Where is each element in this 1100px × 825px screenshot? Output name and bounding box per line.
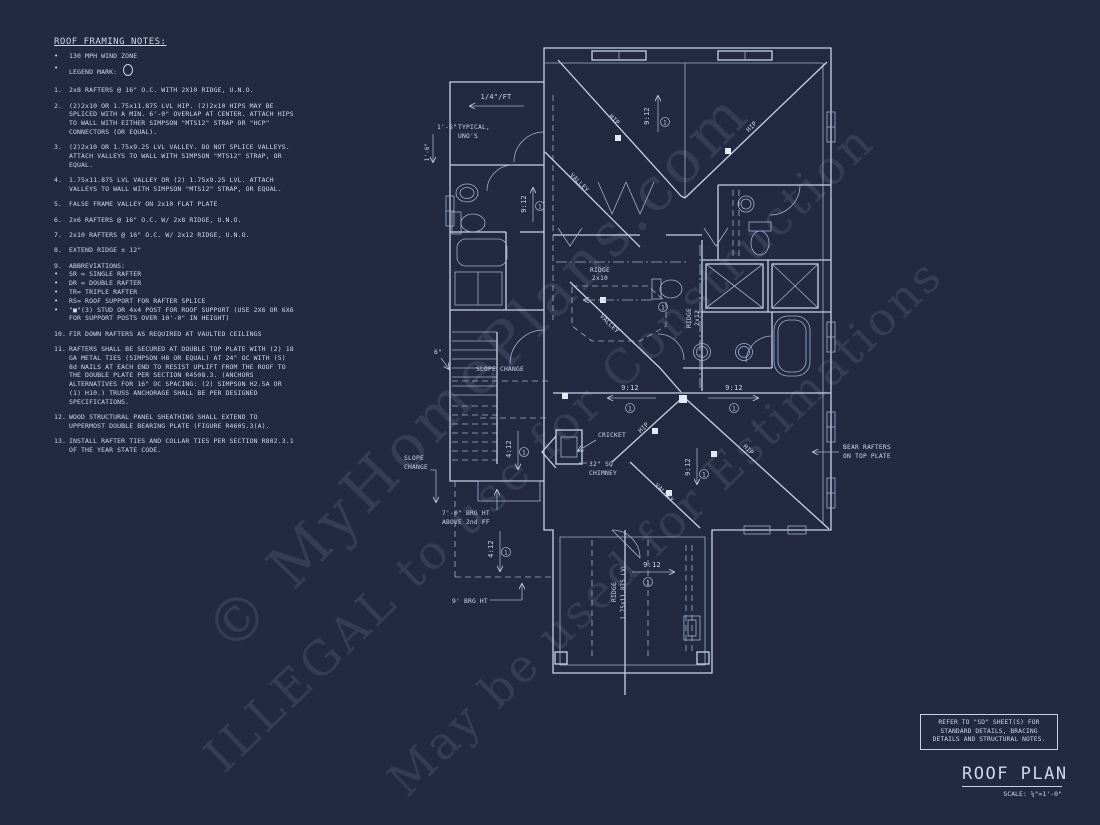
note-number: 8. [54,246,69,255]
hip-label-4: HIP [741,443,754,456]
note-number: 5. [54,200,69,209]
dim-1-6-vertical-label: 1'-6" [425,143,431,161]
slope-change-label-2a: SLOPE [404,455,424,462]
note-text: (2)2x10 OR 1.75x9.25 LVL VALLEY. DO NOT … [69,143,296,169]
note-item: 7. 2x10 RAFTERS @ 16" O.C. W/ 2x12 RIDGE… [54,231,296,240]
note-sub-item: •RS= ROOF SUPPORT FOR RAFTER SPLICE [54,297,296,306]
legend-circle-icon [123,64,133,76]
note-number: 12. [54,413,69,431]
reference-note-line: DETAILS AND STRUCTURAL NOTES. [923,736,1055,745]
note-bullet-text: LEGEND MARK: [69,64,296,77]
svg-text:1: 1 [663,121,667,127]
notes-list: 1. 2x8 RAFTERS @ 16" O.C. WITH 2X10 RIDG… [54,86,296,454]
note-number: 13. [54,437,69,455]
slope-912-leftwing: 9:121 [520,188,545,222]
note-text: ABBREVIATIONS: [69,262,296,271]
pitch-note-label: 1/4"/FT [481,93,512,101]
note-item: 12. WOOD STRUCTURAL PANEL SHEATHING SHAL… [54,413,296,431]
slope-912-lower: 9:121 [684,448,709,484]
sheet-scale: SCALE: ¼"=1'-0" [962,790,1062,798]
note-number: 2. [54,102,69,137]
note-text: 2x6 RAFTERS @ 16" O.C. W/ 2x8 RIDGE, U.N… [69,216,296,225]
bathroom-fixtures-right [694,196,819,376]
bathroom-fixtures-center: 1 [542,279,682,468]
slope-912-top: 9:121 [643,96,670,132]
svg-text:9:12: 9:12 [725,384,743,392]
interior-walls [450,82,831,481]
doors [487,132,800,558]
cricket-label: CRICKET [598,432,626,439]
note-text: 2x10 RAFTERS @ 16" O.C. W/ 2x12 RIDGE, U… [69,231,296,240]
note-number: 10. [54,330,69,339]
ridge-lvl-label-b: 1.75x11.875 LVL [621,564,627,620]
windows [446,112,835,534]
svg-text:1: 1 [646,581,650,587]
note-item: 5. FALSE FRAME VALLEY ON 2x10 FLAT PLATE [54,200,296,209]
note-text: EXTEND RIDGE ± 12" [69,246,296,255]
ridge-2x12-label-a: RIDGE [686,308,693,328]
ridge-2x12-label-b: 2x12 [694,310,701,326]
note-number: 6. [54,216,69,225]
svg-text:9:12: 9:12 [643,107,651,125]
svg-text:4:12: 4:12 [487,540,495,558]
svg-text:4:12: 4:12 [505,440,513,458]
hip-label-1: HIP [607,113,620,126]
svg-text:1: 1 [702,473,706,479]
svg-text:1: 1 [538,205,542,211]
reference-note-line: REFER TO "SD" SHEET(S) FOR [923,719,1055,728]
note-bullet-legend: • LEGEND MARK: [54,64,296,77]
note-text: 1.75x11.875 LVL VALLEY OR (2) 1.75x9.25 … [69,176,296,194]
note-item: 9. ABBREVIATIONS: •SR = SINGLE RAFTER•DR… [54,262,296,324]
reference-note-box: REFER TO "SD" SHEET(S) FOR STANDARD DETA… [920,714,1058,750]
note-text: FALSE FRAME VALLEY ON 2x10 FLAT PLATE [69,200,296,209]
ridge-2x10-label-b: 2x10 [592,275,608,282]
note-number: 9. [54,262,69,271]
note-item: 11. RAFTERS SHALL BE SECURED AT DOUBLE T… [54,345,296,407]
svg-text:1: 1 [628,407,632,413]
bear-rafters-label-a: BEAR RAFTERS [843,444,891,451]
slope-912-center-right: 9:121 [708,384,758,413]
notes-title: ROOF FRAMING NOTES: [54,38,296,47]
svg-text:1: 1 [504,551,508,557]
note-sub-item: •"■"(3) STUD OR 4x4 POST FOR ROOF SUPPOR… [54,306,296,324]
roof-framing-notes: ROOF FRAMING NOTES: • 130 MPH WIND ZONE … [54,38,296,461]
brg7-label-b: ABOVE 2nd FF [442,519,490,526]
note-text: WOOD STRUCTURAL PANEL SHEATHING SHALL EX… [69,413,296,431]
reference-note-line: STANDARD DETAILS, BRACING [923,728,1055,737]
note-sub-item: •SR = SINGLE RAFTER [54,270,296,279]
note-text: 2x8 RAFTERS @ 16" O.C. WITH 2X10 RIDGE, … [69,86,296,95]
dim-6-label: 6" [434,349,442,356]
note-sub-item: •TR= TRIPLE RAFTER [54,288,296,297]
slope-412-lower: 4:121 [487,531,511,571]
svg-text:9:12: 9:12 [520,195,528,213]
note-item: 13. INSTALL RAFTER TIES AND COLLAR TIES … [54,437,296,455]
bear-rafters-label-b: ON TOP PLATE [843,453,891,460]
note-item: 8. EXTEND RIDGE ± 12" [54,246,296,255]
note-number: 11. [54,345,69,407]
chimney-label-b: CHIMNEY [589,470,617,477]
typical-label-2: UNO'S [458,133,478,140]
svg-text:9:12: 9:12 [684,458,692,476]
note-bullet-wind-zone: • 130 MPH WIND ZONE [54,52,296,61]
svg-text:1: 1 [732,407,736,413]
ridge-lvl-label-a: RIDGE [611,582,618,602]
note-item: 10. FIR DOWN RAFTERS AS REQUIRED AT VAUL… [54,330,296,339]
sheet-title: ROOF PLAN [962,764,1062,787]
valley-label-1: VALLEY [568,172,590,194]
note-item: 1. 2x8 RAFTERS @ 16" O.C. WITH 2X10 RIDG… [54,86,296,95]
note-text: FIR DOWN RAFTERS AS REQUIRED AT VAULTED … [69,330,296,339]
bathroom-fixtures-left [452,184,507,305]
slope-change-label-1: SLOPE CHANGE [476,366,524,373]
note-number: 7. [54,231,69,240]
bottom-wing [555,530,709,695]
note-item: 4. 1.75x11.875 LVL VALLEY OR (2) 1.75x9.… [54,176,296,194]
note-text: RAFTERS SHALL BE SECURED AT DOUBLE TOP P… [69,345,296,407]
svg-text:1: 1 [522,451,526,457]
hip-label-3: HIP [637,421,650,434]
slope-change-label-2b: CHANGE [404,464,428,471]
slope-412-upper: 4:121 [505,431,529,469]
dim-1-6-label: 1'-6" [437,124,457,131]
bullet-icon: • [54,52,69,61]
note-number: 1. [54,86,69,95]
note-number: 3. [54,143,69,169]
brg9-label: 9' BRG HT [452,598,488,605]
slope-912-center-left: 9:121 [608,384,656,413]
typical-label-1: TYPICAL, [458,124,490,131]
note-item: 3. (2)2x10 OR 1.75x9.25 LVL VALLEY. DO N… [54,143,296,169]
svg-text:9:12: 9:12 [643,561,661,569]
ridge-2x10-label-a: RIDGE [590,267,610,274]
note-text: (2)2x10 OR 1.75x11.875 LVL HIP. (2)2x10 … [69,102,296,137]
note-bullet-text: 130 MPH WIND ZONE [69,52,296,61]
hip-label-2: HIP [745,120,758,133]
title-block: ROOF PLAN SCALE: ¼"=1'-0" [962,764,1062,798]
note-sub-item: •DR = DOUBLE RAFTER [54,279,296,288]
note-item: 2. (2)2x10 OR 1.75x11.875 LVL HIP. (2)2x… [54,102,296,137]
valley-label-2: VALLEY [598,313,620,335]
stairs [452,332,497,464]
bullet-icon: • [54,64,69,73]
brg7-label-a: 7'-0" BRG HT [442,510,490,517]
svg-text:9:12: 9:12 [621,384,639,392]
blueprint-sheet: { "sheet": { "title": "ROOF PLAN", "scal… [0,0,1100,825]
chimney-label-a: 32" SQ [589,461,613,468]
note-number: 4. [54,176,69,194]
slope-912-bottom-wing: 9:121 [632,561,674,587]
note-item: 6. 2x6 RAFTERS @ 16" O.C. W/ 2x8 RIDGE, … [54,216,296,225]
legend-mark-label: 1 [661,306,665,312]
note-sub-list: •SR = SINGLE RAFTER•DR = DOUBLE RAFTER•T… [54,270,296,323]
note-text: INSTALL RAFTER TIES AND COLLAR TIES PER … [69,437,296,455]
